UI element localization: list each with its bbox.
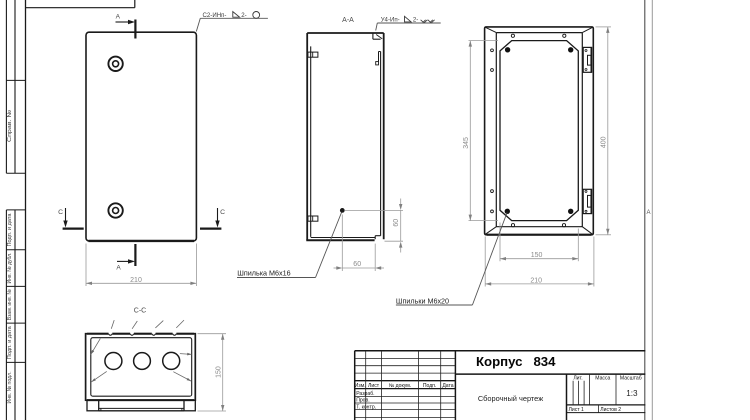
- svg-text:Масштаб: Масштаб: [620, 375, 642, 381]
- svg-text:Т. контр.: Т. контр.: [356, 404, 376, 410]
- svg-text:Изм.: Изм.: [355, 383, 366, 389]
- svg-text:60: 60: [353, 261, 361, 268]
- svg-text:Подп.: Подп.: [423, 383, 437, 389]
- svg-text:150: 150: [215, 366, 222, 378]
- svg-text:400: 400: [600, 136, 607, 148]
- svg-text:210: 210: [530, 277, 542, 284]
- svg-text:1:3: 1:3: [626, 389, 638, 398]
- svg-text:Разраб.: Разраб.: [356, 391, 374, 397]
- svg-text:Подп. и дата: Подп. и дата: [7, 325, 13, 359]
- svg-text:У4-Ип-: У4-Ип-: [381, 17, 400, 24]
- svg-text:Лист 1: Лист 1: [569, 407, 584, 413]
- svg-text:С: С: [220, 209, 225, 216]
- svg-text:А-А: А-А: [342, 17, 354, 24]
- svg-text:Дата: Дата: [442, 383, 453, 389]
- svg-text:№ докум.: № докум.: [389, 383, 411, 389]
- svg-text:150: 150: [531, 252, 543, 259]
- svg-text:Инв. № дубл.: Инв. № дубл.: [7, 252, 13, 283]
- svg-text:С: С: [58, 209, 63, 216]
- svg-text:2-: 2-: [413, 17, 418, 24]
- svg-text:С-С: С-С: [134, 308, 146, 315]
- svg-text:Справ. №: Справ. №: [7, 110, 13, 142]
- svg-text:Лит.: Лит.: [573, 375, 582, 381]
- svg-text:Лист: Лист: [368, 383, 380, 389]
- svg-text:Листов 2: Листов 2: [600, 407, 621, 413]
- svg-text:С2-ИНп-: С2-ИНп-: [203, 12, 227, 19]
- svg-text:Взам. инв. №: Взам. инв. №: [7, 289, 13, 320]
- svg-text:Инв. № подл.: Инв. № подл.: [7, 371, 13, 403]
- svg-text:210: 210: [130, 277, 142, 284]
- svg-text:345: 345: [463, 137, 470, 149]
- svg-text:А: А: [116, 265, 121, 272]
- svg-text:Подп. и дата: Подп. и дата: [7, 213, 13, 247]
- svg-text:Масса: Масса: [595, 375, 610, 381]
- svg-text:Шпильки М6х20: Шпильки М6х20: [396, 297, 449, 306]
- svg-text:А: А: [116, 13, 121, 20]
- svg-text:60: 60: [393, 219, 400, 227]
- svg-text:Шпилька М6х16: Шпилька М6х16: [237, 269, 290, 278]
- svg-text:Корпус 834: Корпус 834: [476, 354, 556, 369]
- svg-text:Пров.: Пров.: [356, 398, 369, 404]
- svg-text:Сборочный чертеж: Сборочный чертеж: [478, 394, 543, 403]
- svg-text:2-: 2-: [241, 12, 246, 19]
- svg-text:А: А: [646, 210, 650, 216]
